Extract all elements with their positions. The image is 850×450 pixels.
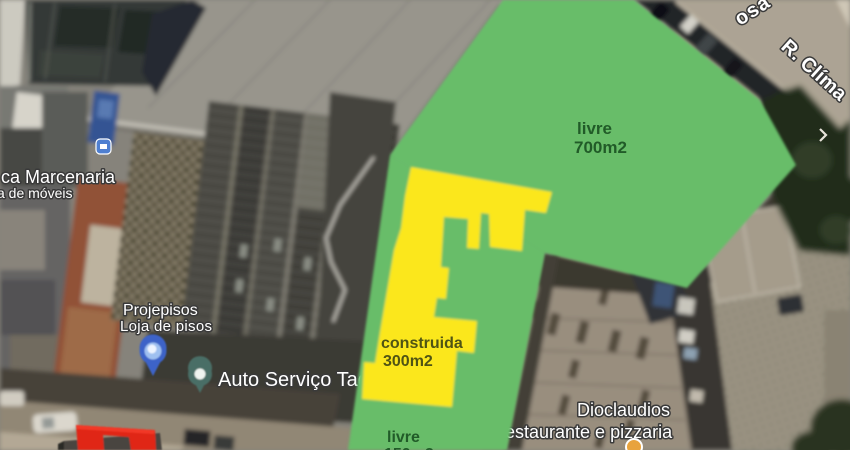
svg-text:livre: livre <box>387 429 420 446</box>
svg-text:Dioclaudios: Dioclaudios <box>577 400 670 420</box>
svg-text:Auto Serviço Tada: Auto Serviço Tada <box>218 369 381 391</box>
svg-text:ca Marcenaria: ca Marcenaria <box>1 167 116 187</box>
svg-text:150m2: 150m2 <box>384 446 434 450</box>
svg-text:a de móveis: a de móveis <box>0 185 72 201</box>
svg-text:restaurante e pizzaria: restaurante e pizzaria <box>499 422 673 442</box>
svg-text:Loja de pisos: Loja de pisos <box>120 318 212 335</box>
svg-text:livre: livre <box>577 119 612 138</box>
svg-text:300m2: 300m2 <box>383 353 433 370</box>
svg-text:Projepisos: Projepisos <box>123 302 198 319</box>
svg-text:construida: construida <box>381 335 463 352</box>
svg-text:700m2: 700m2 <box>574 138 627 157</box>
